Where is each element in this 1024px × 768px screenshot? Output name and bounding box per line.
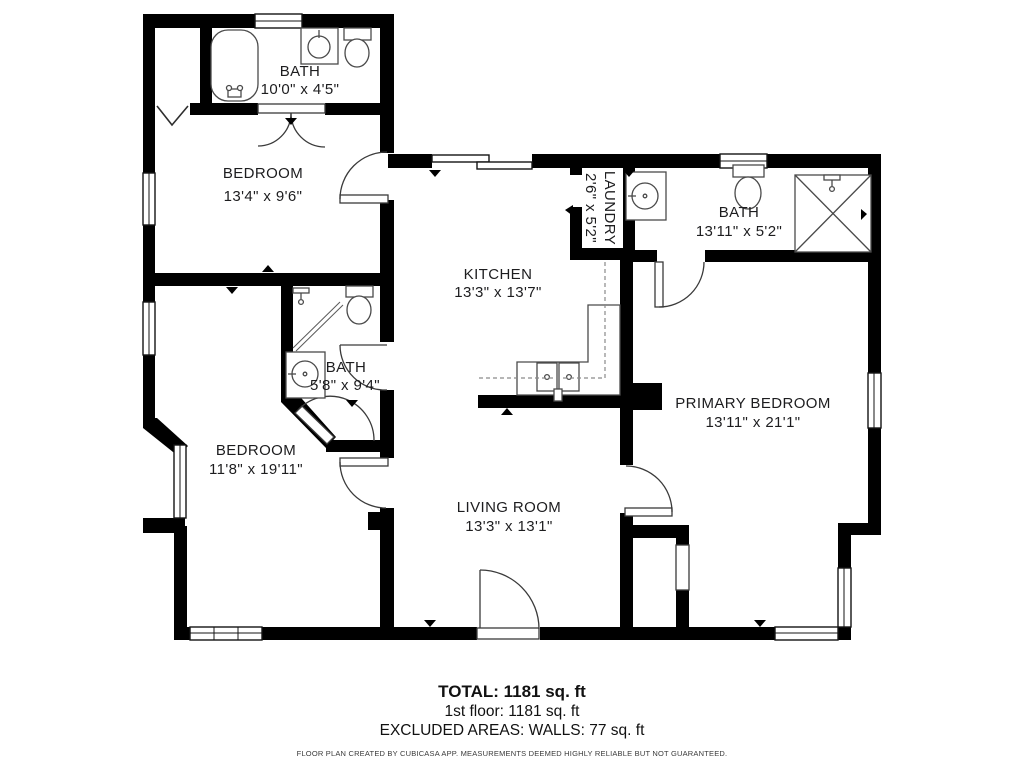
room-name: LAUNDRY — [601, 171, 618, 245]
marker-triangle — [565, 205, 573, 216]
wall-segment — [620, 260, 633, 383]
marker-triangle — [346, 400, 358, 407]
room-name: BATH — [719, 204, 760, 221]
door-leaf — [295, 406, 334, 444]
walls — [143, 14, 881, 640]
room-dimensions: 11'8" x 19'11" — [209, 461, 303, 478]
toilet-tank-icon — [733, 165, 764, 177]
shower-head-icon — [299, 300, 304, 305]
shower-glass-line — [296, 305, 343, 351]
floor-plan-canvas: BATH 10'0" x 4'5" BEDROOM 13'4" x 9'6" L… — [0, 0, 1024, 768]
room-name: LIVING ROOM — [457, 499, 561, 516]
wall-segment — [200, 14, 212, 104]
wall-segment — [174, 627, 191, 640]
floor-area-text: 1st floor: 1181 sq. ft — [0, 703, 1024, 720]
wall-segment — [380, 508, 394, 627]
marker-triangle — [285, 118, 297, 125]
marker-triangle — [262, 265, 274, 272]
wall-segment — [838, 535, 851, 568]
door-leaf — [340, 195, 388, 203]
kitchen-sink-drain-icon — [567, 375, 572, 380]
room-dimensions: 13'11" x 5'2" — [696, 223, 782, 240]
wall-segment — [143, 273, 394, 286]
floor-plan-page: BATH 10'0" x 4'5" BEDROOM 13'4" x 9'6" L… — [0, 0, 1024, 768]
wall-segment — [620, 410, 633, 465]
shower-head-icon — [824, 175, 840, 180]
kitchen-faucet-icon — [554, 389, 562, 401]
sink-drain-icon — [303, 372, 307, 376]
wall-segment — [868, 428, 881, 523]
sink-basin-icon — [308, 36, 330, 58]
door-arc — [659, 262, 704, 307]
room-dimensions: 2'6" x 5'2" — [582, 173, 599, 243]
room-dimensions: 13'11" x 21'1" — [705, 414, 800, 431]
marker-triangle — [429, 170, 441, 177]
room-name: BEDROOM — [223, 165, 303, 182]
wall-segment — [540, 627, 775, 640]
shower-head-icon — [830, 187, 835, 192]
wall-segment — [676, 590, 689, 627]
door-leaf — [655, 262, 663, 307]
door-leaf — [340, 458, 388, 466]
wall-segment — [380, 390, 394, 458]
room-labels: BATH 10'0" x 4'5" BEDROOM 13'4" x 9'6" L… — [209, 63, 831, 535]
toilet-tank-icon — [344, 28, 371, 40]
plan-summary: TOTAL: 1181 sq. ft 1st floor: 1181 sq. f… — [0, 683, 1024, 758]
wall-segment — [368, 512, 380, 530]
wall-segment — [532, 154, 720, 168]
toilet-bowl-icon — [347, 296, 371, 324]
wall-segment — [478, 395, 620, 408]
shower-glass-line — [293, 302, 340, 348]
room-dimensions: 13'3" x 13'7" — [454, 284, 541, 301]
wall-segment — [838, 627, 851, 640]
room-dimensions: 13'3" x 13'1" — [465, 518, 552, 535]
double-door-leaf — [258, 104, 325, 113]
marker-triangle — [424, 620, 436, 627]
excluded-area-text: EXCLUDED AREAS: WALLS: 77 sq. ft — [0, 722, 1024, 739]
wall-segment — [262, 627, 477, 640]
wall-segment — [143, 14, 155, 173]
door-arc — [480, 570, 539, 629]
door-leaf — [625, 508, 672, 516]
marker-triangle — [226, 287, 238, 294]
wall-segment — [630, 525, 689, 538]
wall-segment — [570, 168, 582, 175]
total-area-text: TOTAL: 1181 sq. ft — [0, 683, 1024, 701]
wall-segment — [767, 154, 880, 168]
wall-segment — [143, 225, 155, 302]
corner-angle-line — [157, 106, 188, 125]
wall-segment — [838, 523, 881, 535]
marker-triangle — [754, 620, 766, 627]
room-name: BEDROOM — [216, 442, 296, 459]
disclaimer-text: FLOOR PLAN CREATED BY CUBICASA APP. MEAS… — [0, 749, 1024, 758]
room-dimensions: 10'0" x 4'5" — [261, 81, 340, 98]
wall-segment — [676, 538, 689, 545]
door-arc — [340, 152, 387, 199]
room-name: BATH — [280, 63, 321, 80]
bathtub-faucet-icon — [238, 86, 243, 91]
chimney-block — [620, 383, 662, 410]
bathtub-faucet-icon — [227, 86, 232, 91]
wall-segment — [143, 14, 255, 28]
wall-segment — [143, 355, 155, 418]
shower-head-icon — [293, 288, 309, 293]
sink-drain-icon — [643, 194, 647, 198]
wall-segment — [380, 14, 394, 153]
toilet-bowl-icon — [345, 39, 369, 67]
toilet-tank-icon — [346, 286, 373, 297]
sliding-window — [432, 155, 489, 162]
wall-segment — [380, 286, 394, 342]
room-dimensions: 13'4" x 9'6" — [224, 188, 303, 205]
wall-segment — [388, 154, 432, 168]
wall-segment — [174, 526, 187, 627]
room-name: PRIMARY BEDROOM — [675, 395, 830, 412]
closet-opening — [676, 545, 689, 590]
kitchen-sink-drain-icon — [545, 375, 550, 380]
wall-segment — [190, 103, 258, 115]
sliding-window — [477, 162, 532, 169]
door-arc — [340, 462, 386, 508]
door-arc — [258, 113, 291, 146]
door-arc — [626, 466, 672, 512]
entry-door-leaf — [477, 628, 539, 639]
marker-triangle — [501, 408, 513, 415]
room-name: KITCHEN — [464, 266, 533, 283]
room-name: BATH — [326, 359, 367, 376]
room-dimensions: 5'8" x 9'4" — [310, 377, 380, 394]
